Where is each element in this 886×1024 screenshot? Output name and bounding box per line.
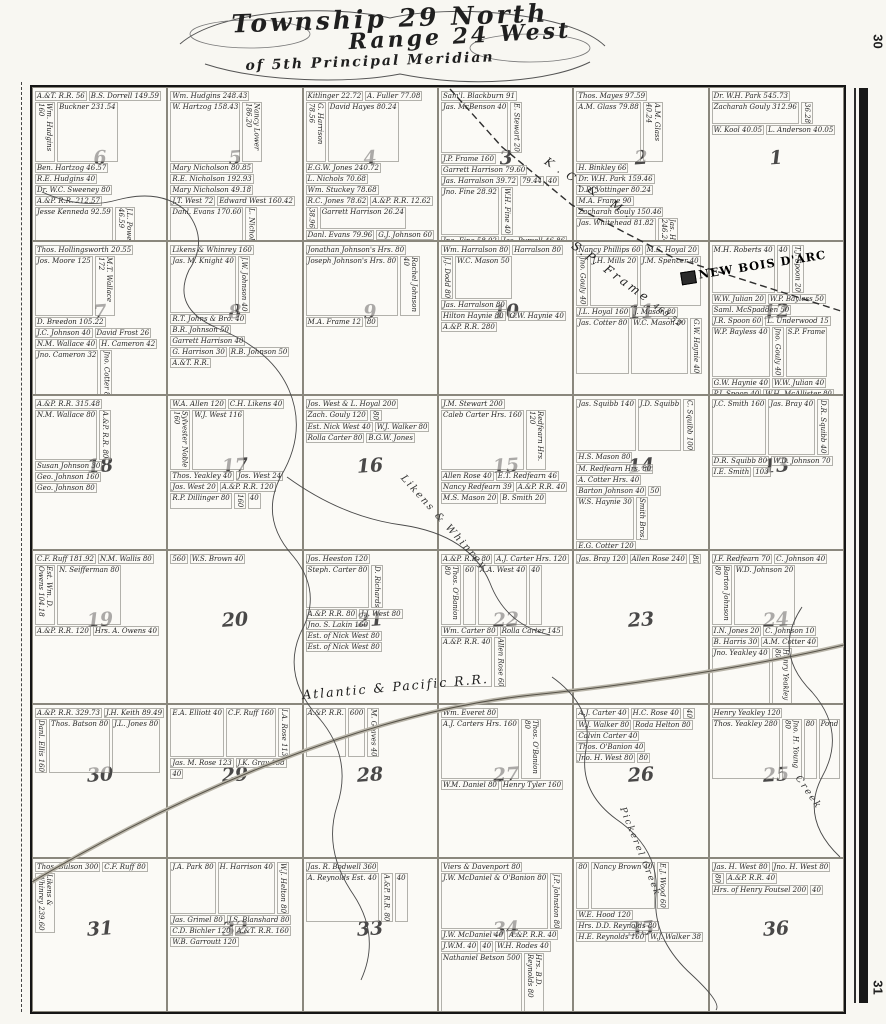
parcel-label: Jno. Cotter 80 [100, 350, 112, 395]
parcel-label: Danl. Evans 170.60 [170, 207, 243, 241]
page-number-top: 30 [871, 34, 886, 50]
parcel-label: D. Richards [371, 565, 383, 608]
parcel-list: Jas. Squibb 140J.D. SquibbC. Squibb 100H… [574, 396, 707, 549]
parcel-label: Mary Nicholson 49.18 [170, 185, 253, 195]
parcel-label: L. Anderson 40.05 [766, 125, 835, 135]
section-cell-25: 25Henry Yeakley 120Thos. Yeakley 280Jno.… [709, 704, 844, 858]
parcel-label: 160 [234, 493, 246, 508]
parcel-label: 103 [753, 467, 770, 477]
parcel-label: Jno. Fine 28.92 [441, 187, 499, 235]
parcel-label: H.C. Rose 40 [631, 708, 681, 719]
parcel-label: Henry Tyler 160 [501, 780, 563, 790]
parcel-label: J.W. McDaniel 40 [441, 930, 505, 940]
parcel-label: Jno. H. West 80 [772, 862, 831, 872]
parcel-label: Jas. Bray 40 [768, 399, 815, 454]
parcel-label: N.M. Wallace 80 [35, 410, 97, 459]
parcel-list: C.F. Ruff 181.92N.M. Wallis 80Est. Wm. D… [33, 551, 166, 639]
parcel-label: Est. of Nick West 80 [306, 631, 382, 641]
parcel-label: W.S. Haynie 30 [576, 497, 633, 541]
parcel-label: Jas. McBenson 40 [441, 102, 508, 153]
parcel-label: Jas. M. Knight 40 [170, 256, 236, 312]
parcel-list: Wm. Harralson 80Harralson 80J.J. Dodd 80… [439, 242, 572, 335]
parcel-label: M.A. Frame 12 [306, 317, 363, 327]
parcel-label: Jas. Whitehead 81.82 [576, 218, 656, 241]
parcel-label: J.K. Gray 158 [236, 758, 287, 768]
parcel-label: N.M. Wallis 80 [98, 554, 154, 564]
parcel-label: Nancy Redfearn 39 [441, 482, 514, 492]
parcel-label: 40 [546, 176, 559, 186]
parcel-list: A.&P. R.R. 80A.J. Carter Hrs. 120Thos. O… [439, 551, 572, 691]
parcel-label: Pond [819, 719, 841, 779]
parcel-label: Jno. Yeakley 40 [712, 648, 770, 704]
parcel-label: 40 [480, 941, 493, 951]
parcel-label: Allen Rose 40 [441, 471, 494, 481]
parcel-label: 80 [712, 873, 724, 884]
parcel-label: Est. Wm. D. Owens 104.18 [35, 565, 55, 625]
section-cell-34: 34Viers & Davenport 80J.W. McDaniel & O'… [438, 858, 573, 1012]
parcel-label: Likens & Whinrey 160 [170, 245, 254, 255]
parcel-label: Buckner 231.54 [57, 102, 118, 162]
parcel-label: Viers & Davenport 80 [441, 862, 522, 872]
parcel-label: Jos. Heeston 120 [306, 554, 370, 564]
parcel-label: R.P. Dillinger 80 [170, 493, 231, 508]
parcel-label: H.E. Reynolds 160 [576, 932, 646, 942]
parcel-label: J.J. West 80 [359, 609, 403, 619]
parcel-label: Sylvester Noble 160 [170, 410, 190, 470]
section-cell-27: 27Wm. Everet 80A.J. Carters Hrs. 160Thos… [438, 704, 573, 858]
parcel-label: Wm. Stuckey 78.68 [306, 185, 379, 195]
section-cell-6: 6A.&T. R.R. 56B.S. Dorrell 149.59Wm. Hud… [32, 87, 167, 241]
parcel-label: E.G.W. Jones 240.72 [306, 163, 381, 173]
parcel-label: Jas. Squibb 140 [576, 399, 636, 451]
section-cell-17: 17W.A. Allen 120C.H. Likens 40Sylvester … [167, 395, 302, 549]
parcel-label: L. Nichols 70.68 [306, 174, 368, 184]
parcel-label: Thos. O'Banion 40 [576, 742, 645, 752]
parcel-label: Jas. R. Bodwell 360 [306, 862, 379, 872]
parcel-label: A.&P. R.R. 80 [99, 410, 111, 459]
parcel-label: D.R. Squibb 40 [817, 399, 829, 454]
section-cell-14: 14Jas. Squibb 140J.D. SquibbC. Squibb 10… [573, 395, 708, 549]
parcel-label: R.E. Hudgins 40 [35, 174, 97, 184]
parcel-label: Est. Nick West 40 [306, 422, 373, 432]
parcel-label: A.M. Glass 40.24 [643, 102, 663, 162]
parcel-label: Rachel Johnson 40 [400, 256, 420, 316]
parcel-label: Jos. Moore 125 [35, 256, 93, 316]
parcel-label: N. Seifferman 80 [57, 565, 121, 625]
parcel-list: A.&P. R.R.600M. Graves 40 [304, 705, 437, 761]
parcel-label: A.&T. R.R. [170, 358, 211, 368]
parcel-label: C.D. Bichler 120 [170, 926, 232, 936]
parcel-label: Ben. Hartzog 46.57 [35, 163, 108, 173]
section-cell-28: 28A.&P. R.R.600M. Graves 40 [303, 704, 438, 858]
parcel-label: S.P. Frame [786, 327, 828, 377]
parcel-label: W.C. Mason 50 [455, 256, 512, 299]
parcel-label: Steph. Carter 80 [306, 565, 370, 608]
section-cell-16: 16Jos. West & L. Hoyal 200Zach. Gouly 12… [303, 395, 438, 549]
parcel-label: Henry Yeakley 120 [712, 708, 783, 718]
parcel-label: Jas. Harralson 39.72 [441, 176, 518, 186]
parcel-label: Thos. Mayes 97.59 [576, 91, 647, 101]
parcel-list: Jas. R. Bodwell 360A. Reynolds Est. 40A.… [304, 859, 437, 925]
parcel-label: B.S. Dorrell 149.59 [89, 91, 161, 101]
parcel-label: Joseph Johnson's Hrs. 80 [306, 256, 398, 316]
parcel-label: 40 [248, 493, 261, 508]
parcel-label: Nancy Lower 186.20 [242, 102, 262, 162]
section-number: 23 [627, 609, 655, 633]
parcel-list: Thos. Hollingsworth 20.55Jos. Moore 125M… [33, 242, 166, 395]
parcel-list: E.A. Elliott 40C.F. Ruff 160I.A. Rose 11… [168, 705, 301, 782]
parcel-label: 40 [683, 708, 695, 719]
parcel-label: Jos. West 20 [170, 482, 217, 492]
parcel-label: Smith Bros. [636, 497, 648, 541]
parcel-label: A.&P. R.R. 329.73 [35, 708, 102, 718]
parcel-label: W.J. West 116 [192, 410, 244, 470]
parcel-label: G.J. Johnson 60 [376, 230, 434, 240]
parcel-label: Jas. Grimel 80 [170, 915, 224, 925]
parcel-label: E.T. Redfearn 46 [496, 471, 559, 481]
parcel-label: W. Kool 40.05 [712, 125, 764, 135]
parcel-label: A.J. Carter 40 [576, 708, 628, 719]
parcel-label: A. Cotter Hrs. 40 [576, 475, 641, 485]
parcel-label: Jno. S. Lakin 160 [306, 620, 370, 630]
parcel-label: Hilton Haynie 80 [441, 311, 506, 321]
parcel-label: A.M. Glass 79.88 [576, 102, 640, 162]
parcel-label: J.S. Blanshard 80 [227, 915, 292, 925]
parcel-label: Geo. Johnson 80 [35, 483, 97, 493]
parcel-label: Jas. Harralson 246.24 [658, 218, 678, 241]
parcel-label: Jas. Cotter 80 [576, 318, 629, 374]
parcel-label: C.F. Ruff 160 [226, 708, 276, 757]
parcel-label: J.M. Stewart 200 [441, 399, 505, 409]
parcel-label: C. Johnson 40 [774, 554, 827, 564]
section-cell-24: 24J.F. Redfearn 70C. Johnson 40Barton Jo… [709, 550, 844, 704]
parcel-label: W.D. Johnson 20 [734, 565, 796, 625]
section-cell-19: 19C.F. Ruff 181.92N.M. Wallis 80Est. Wm.… [32, 550, 167, 704]
section-number: 28 [356, 763, 384, 787]
parcel-label: Wm. Harralson 80 [441, 245, 510, 255]
parcel-label: Dr. W.C. Sweeney 80 [35, 185, 112, 195]
parcel-label: A.J. Carters Hrs. 160 [441, 719, 519, 779]
township-map: 6A.&T. R.R. 56B.S. Dorrell 149.59Wm. Hud… [30, 85, 846, 1014]
parcel-label: H. Binkley 66 [576, 163, 628, 173]
parcel-label: Thos. Yeakley 40 [170, 471, 233, 481]
parcel-label: Zach. Gouly 120 [306, 410, 368, 421]
sections-grid: 6A.&T. R.R. 56B.S. Dorrell 149.59Wm. Hud… [32, 87, 844, 1012]
parcel-label: W.H. Fine 40 [501, 187, 513, 235]
parcel-label: G.W. Haynie 40 [508, 311, 566, 321]
parcel-label: Jesse Kenneda 92.59 [35, 207, 113, 241]
parcel-label: A.&P. R.R. 40 [726, 873, 777, 884]
parcel-label: Caleb Carter Hrs. 160 [441, 410, 524, 470]
parcel-label: Garrett Harrison 26.24 [320, 207, 406, 229]
parcel-label: J.L. Hoyal 160 [576, 307, 630, 317]
parcel-label: Jonathan Johnson's Hrs. 80 [306, 245, 406, 255]
parcel-label: C.F. Ruff 80 [102, 862, 147, 872]
parcel-label: Mary Nicholson 80.85 [170, 163, 253, 173]
parcel-label: C. Squibb 100 [683, 399, 695, 451]
parcel-list: 80Nancy Brown 40E.J. Wood 60W.E. Hood 12… [574, 859, 707, 945]
section-cell-4: 4Kitlinger 22.72A. Fuller 77.08G. Harris… [303, 87, 438, 241]
parcel-label: B.R. Johnson 50 [170, 325, 231, 335]
parcel-label: Wm. Hudgins 160 [35, 102, 55, 162]
parcel-label: 40 [529, 565, 542, 625]
parcel-label: Barton Johnson 40 [576, 486, 646, 496]
parcel-label: M.S. Hoyal 20 [645, 245, 699, 255]
parcel-label: Jno. Gouly 40 [576, 256, 588, 306]
parcel-label: Garrett Harrison 79.60 [441, 165, 527, 175]
section-cell-15: 15J.M. Stewart 200Caleb Carter Hrs. 160R… [438, 395, 573, 549]
parcel-label: 80 [370, 410, 382, 421]
parcel-list: A.&P. R.R. 329.73J.H. Keith 89.49Danl. E… [33, 705, 166, 776]
parcel-label: Zacharah Gouly 312.96 [712, 102, 799, 124]
parcel-label: Jos. West & L. Hoyal 200 [306, 399, 398, 409]
parcel-label: Thos. Hollingsworth 20.55 [35, 245, 133, 255]
parcel-label: Thos. O'Banion 80 [441, 565, 461, 625]
section-cell-29: 29E.A. Elliott 40C.F. Ruff 160I.A. Rose … [167, 704, 302, 858]
parcel-label: R.B. Johnson 50 [229, 347, 290, 357]
parcel-label: 40 [395, 873, 408, 922]
parcel-list: Jos. West & L. Hoyal 200Zach. Gouly 1208… [304, 396, 437, 446]
section-cell-32: 32J.A. Park 80H. Harrison 40W.J. Helton … [167, 858, 302, 1012]
map-title: Township 29 North Range 24 West of 5th P… [150, 4, 630, 69]
parcel-label: A. Reynolds Est. 40 [306, 873, 379, 922]
parcel-label: Hrs. A. Owens 40 [93, 626, 159, 636]
section-cell-30: 30A.&P. R.R. 329.73J.H. Keith 89.49Danl.… [32, 704, 167, 858]
parcel-label: Jas. Harralson 80 [441, 300, 507, 310]
parcel-list: Jonathan Johnson's Hrs. 80Joseph Johnson… [304, 242, 437, 330]
parcel-label: 600 [348, 708, 365, 758]
parcel-label: J.H. Keith 89.49 [104, 708, 164, 718]
parcel-label: Jno. Gouly 40 [772, 327, 784, 377]
parcel-label: J.D. Squibb [638, 399, 681, 451]
parcel-label: Garrett Harrison 40 [170, 336, 245, 346]
parcel-label: M.S. Mason 20 [441, 493, 498, 503]
parcel-label: J.J. Dodd 80 [441, 256, 453, 299]
parcel-label: R.T. Johns & Bro. 40 [170, 314, 246, 324]
parcel-label: A. Fuller 77.08 [365, 91, 422, 101]
section-cell-36: 36Jas. H. West 80Jno. H. West 8080A.&P. … [709, 858, 844, 1012]
parcel-label: 40 [170, 769, 183, 779]
parcel-label: A.M. Cotter 40 [761, 637, 818, 647]
parcel-label: W.J. Walker 80 [576, 720, 631, 730]
parcel-label: Rolla Carter 145 [500, 626, 563, 636]
parcel-list: Kitlinger 22.72A. Fuller 77.08G. Harriso… [304, 88, 437, 241]
parcel-label: Thos. Yeakley 280 [712, 719, 780, 779]
parcel-label: W.P. Bayless 40 [712, 327, 770, 377]
parcel-label: Harralson 80 [512, 245, 563, 255]
parcel-list: A.J. Carter 40H.C. Rose 4040W.J. Walker … [574, 705, 707, 766]
parcel-label: G. Harrison 78.56 [306, 102, 326, 162]
parcel-label: David Hayes 80.24 [328, 102, 399, 162]
parcel-list: A.&P. R.R. 315.48N.M. Wallace 80A.&P. R.… [33, 396, 166, 496]
parcel-label: J.A. Park 80 [170, 862, 215, 914]
parcel-label: Thos. Bulson 300 [35, 862, 100, 872]
parcel-label: W.P. Bayless 50 [768, 294, 826, 304]
section-cell-35: 3580Nancy Brown 40E.J. Wood 60W.E. Hood … [573, 858, 708, 1012]
parcel-label: A.&P. R.R. 40 [516, 482, 567, 492]
parcel-list: Thos. Mayes 97.59A.M. Glass 79.88A.M. Gl… [574, 88, 707, 241]
section-cell-13: 13J.C. Smith 160Jas. Bray 40D.R. Squibb … [709, 395, 844, 549]
parcel-label: E.G. Cotter 120 [576, 541, 635, 549]
parcel-label: E. Stewart 20 [510, 102, 522, 153]
parcel-label: Wm. Hudgins 248.43 [170, 91, 249, 101]
parcel-label: L. Nichols 40 [245, 207, 257, 241]
parcel-label: D. Breedon 105.22 [35, 317, 106, 327]
parcel-label: Likens & Whinrey 239.60 [35, 873, 55, 933]
parcel-label: Wm. Carter 80 [441, 626, 498, 636]
parcel-label: G.W. Haynie 40 [690, 318, 702, 374]
parcel-list: Wm. Hudgins 248.43W. Hartzog 158.43Nancy… [168, 88, 301, 241]
parcel-list: Thos. Bulson 300C.F. Ruff 80Likens & Whi… [33, 859, 166, 936]
parcel-label: Hrs. D.D. Reynolds 80 [576, 921, 658, 931]
parcel-label: W.M. Daniel 80 [441, 780, 499, 790]
parcel-label: W.E. Hood 120 [576, 910, 632, 920]
parcel-label: W.J. Walker 38 [648, 932, 703, 942]
parcel-label: Hrs. of Henry Foutsel 200 [712, 885, 808, 895]
parcel-list: 560W.S. Brown 40 [168, 551, 301, 567]
section-number: 20 [221, 609, 249, 633]
parcel-label: Allen Rose 60 [494, 637, 506, 688]
parcel-label: A.A. West 40 [478, 565, 527, 625]
page-number-bottom: 31 [871, 980, 886, 996]
parcel-label: Jno. Cameron 32 [35, 350, 98, 395]
parcel-label: Jas. M. Rose 123 [170, 758, 233, 768]
parcel-label: I.A. Rose 113 [278, 708, 290, 757]
parcel-label: Susan Johnson 30 [35, 461, 102, 471]
parcel-label: M.T. Wallace 172 [95, 256, 115, 316]
parcel-label: Kitlinger 22.72 [306, 91, 364, 101]
section-cell-31: 31Thos. Bulson 300C.F. Ruff 80Likens & W… [32, 858, 167, 1012]
parcel-label: J.P. Frame 160 [441, 154, 496, 164]
parcel-label: I.N. Jones 20 [712, 626, 762, 636]
parcel-label: A.&P. R.R. [306, 708, 346, 758]
parcel-label: David Frost 26 [95, 328, 152, 338]
parcel-label: Jno. H. Young 80 [782, 719, 802, 779]
parcel-label: 80 [689, 554, 701, 565]
parcel-list: Viers & Davenport 80J.W. McDaniel & O'Ba… [439, 859, 572, 1012]
parcel-label: Geo. Johnson 160 [35, 472, 101, 482]
parcel-label: Roda Helton 80 [633, 720, 693, 730]
section-cell-5: 5Wm. Hudgins 248.43W. Hartzog 158.43Nanc… [167, 87, 302, 241]
parcel-label: I.E. Smith [712, 467, 752, 477]
parcel-label: R.C. Jones 78.62 [306, 196, 369, 206]
parcel-label: Jas. H. West 80 [712, 862, 770, 872]
parcel-list: A.&T. R.R. 56B.S. Dorrell 149.59Wm. Hudg… [33, 88, 166, 241]
parcel-label: Saml. McSpadden 50 [712, 305, 792, 315]
parcel-label: L. Underwood 15 [765, 316, 831, 326]
parcel-label: A.&P. R.R. 80 [381, 873, 393, 922]
parcel-label: Sam'l. Blackburn 91 [441, 91, 517, 101]
parcel-label: Danl. Evans 79.96 [306, 230, 375, 240]
parcel-label: Est. of Nick West 80 [306, 642, 382, 652]
parcel-label: A.&P. R.R. 120 [35, 626, 91, 636]
parcel-label: Dr. W.H. Park 545.73 [712, 91, 790, 101]
parcel-label: H. Cameron 42 [99, 339, 157, 349]
book-gutter-bar [859, 88, 868, 1003]
parcel-label: Hrs. B.D. Reynolds 80 [524, 953, 544, 1013]
parcel-label: J.W. McDaniel & O'Banion 80 [441, 873, 548, 930]
section-number: 1 [769, 147, 784, 170]
section-number: 26 [627, 763, 655, 787]
parcel-label: W. Hartzog 158.43 [170, 102, 240, 162]
parcel-label: H.S. Mason 80 [576, 452, 632, 462]
parcel-list: Likens & Whinrey 160Jas. M. Knight 40J.W… [168, 242, 301, 371]
parcel-list: Wm. Everet 80A.J. Carters Hrs. 160Thos. … [439, 705, 572, 793]
parcel-label: W.W. Julian 20 [712, 294, 766, 304]
parcel-label: D.R. Squibb 80 [712, 456, 769, 466]
parcel-label: B. Harris 30 [712, 637, 760, 647]
parcel-label: J.W.M. 40 [441, 941, 478, 951]
parcel-label: C.F. Ruff 181.92 [35, 554, 96, 564]
parcel-label: Nathaniel Betson 500 [441, 953, 522, 1013]
parcel-list: J.C. Smith 160Jas. Bray 40D.R. Squibb 40… [710, 396, 843, 480]
section-cell-18: 18A.&P. R.R. 315.48N.M. Wallace 80A.&P. … [32, 395, 167, 549]
section-cell-33: 33Jas. R. Bodwell 360A. Reynolds Est. 40… [303, 858, 438, 1012]
parcel-label: 50 [648, 486, 661, 496]
parcel-label: A.&T. R.R. 160 [235, 926, 291, 936]
parcel-label: W.W. Julian 40 [772, 378, 826, 388]
parcel-list: Henry Yeakley 120Thos. Yeakley 280Jno. H… [710, 705, 843, 782]
parcel-label: R.E. Nicholson 192.93 [170, 174, 253, 184]
section-number: 36 [762, 917, 790, 941]
section-cell-20: 20560W.S. Brown 40 [167, 550, 302, 704]
parcel-label: W.B. Garroutt 120 [170, 937, 238, 947]
parcel-label: J.P. Johnston 80 [550, 873, 562, 930]
parcel-label: J.F. Redfearn 70 [712, 554, 773, 564]
parcel-label: W.J. Helton 80 [277, 862, 289, 914]
parcel-label: A.&P. R.R. 80 [306, 609, 357, 619]
section-cell-26: 26A.J. Carter 40H.C. Rose 4040W.J. Walke… [573, 704, 708, 858]
parcel-label: A.&P. R.R. 120 [220, 482, 276, 492]
parcel-label: Wm. Everet 80 [441, 708, 498, 718]
section-cell-1: 1Dr. W.H. Park 545.73Zacharah Gouly 312.… [709, 87, 844, 241]
parcel-label: W.A. Allen 120 [170, 399, 225, 409]
parcel-list: Jas. Bray 120Allen Rose 24080 [574, 551, 707, 568]
parcel-label: 40 [810, 885, 823, 895]
parcel-label: G.W. Haynie 40 [712, 378, 770, 388]
parcel-list: Jos. Heeston 120Steph. Carter 80D. Richa… [304, 551, 437, 656]
parcel-label: 38.96 [306, 207, 318, 229]
parcel-label: Thos. O'Banion 80 [521, 719, 541, 779]
parcel-label: J.C. Johnson 40 [35, 328, 93, 338]
parcel-label: Redfearn Hrs. 120 [526, 410, 546, 470]
parcel-label: B.G.W. Jones [366, 433, 415, 443]
section-cell-2: 2Thos. Mayes 97.59A.M. Glass 79.88A.M. G… [573, 87, 708, 241]
parcel-label: W.H. Rodes 40 [495, 941, 551, 951]
atlas-page: 30 31 Township 29 North Range 24 West of… [0, 0, 886, 1024]
parcel-label: G. Harrison 30 [170, 347, 226, 357]
parcel-label: 60 [463, 565, 476, 625]
section-cell-9: 9Jonathan Johnson's Hrs. 80Joseph Johnso… [303, 241, 438, 395]
parcel-label: Jos. West 24 [236, 471, 283, 481]
parcel-label: 80 [576, 862, 589, 909]
section-cell-10: 10Wm. Harralson 80Harralson 80J.J. Dodd … [438, 241, 573, 395]
parcel-label: Allen Rose 240 [630, 554, 687, 565]
parcel-label: J.R. Spoon 60 [712, 316, 764, 326]
parcel-label: W.D. Johnson 70 [771, 456, 833, 466]
parcel-label: Jno. H. West 80 [576, 753, 635, 763]
parcel-list: Dr. W.H. Park 545.73Zacharah Gouly 312.9… [710, 88, 843, 138]
parcel-label: W.S. Brown 40 [190, 554, 246, 564]
parcel-label: E.A. Elliott 40 [170, 708, 224, 757]
parcel-label: 80 [365, 317, 378, 327]
parcel-label: Edward West 160.42 [217, 196, 295, 206]
parcel-label: A.&P. R.R. 280 [441, 322, 497, 332]
parcel-label: J.T. West 72 [170, 196, 215, 206]
parcel-label: N.M. Wallace 40 [35, 339, 97, 349]
parcel-label: A.&P. R.R. 212.57 [35, 196, 102, 206]
parcel-list: J.A. Park 80H. Harrison 40W.J. Helton 80… [168, 859, 301, 950]
